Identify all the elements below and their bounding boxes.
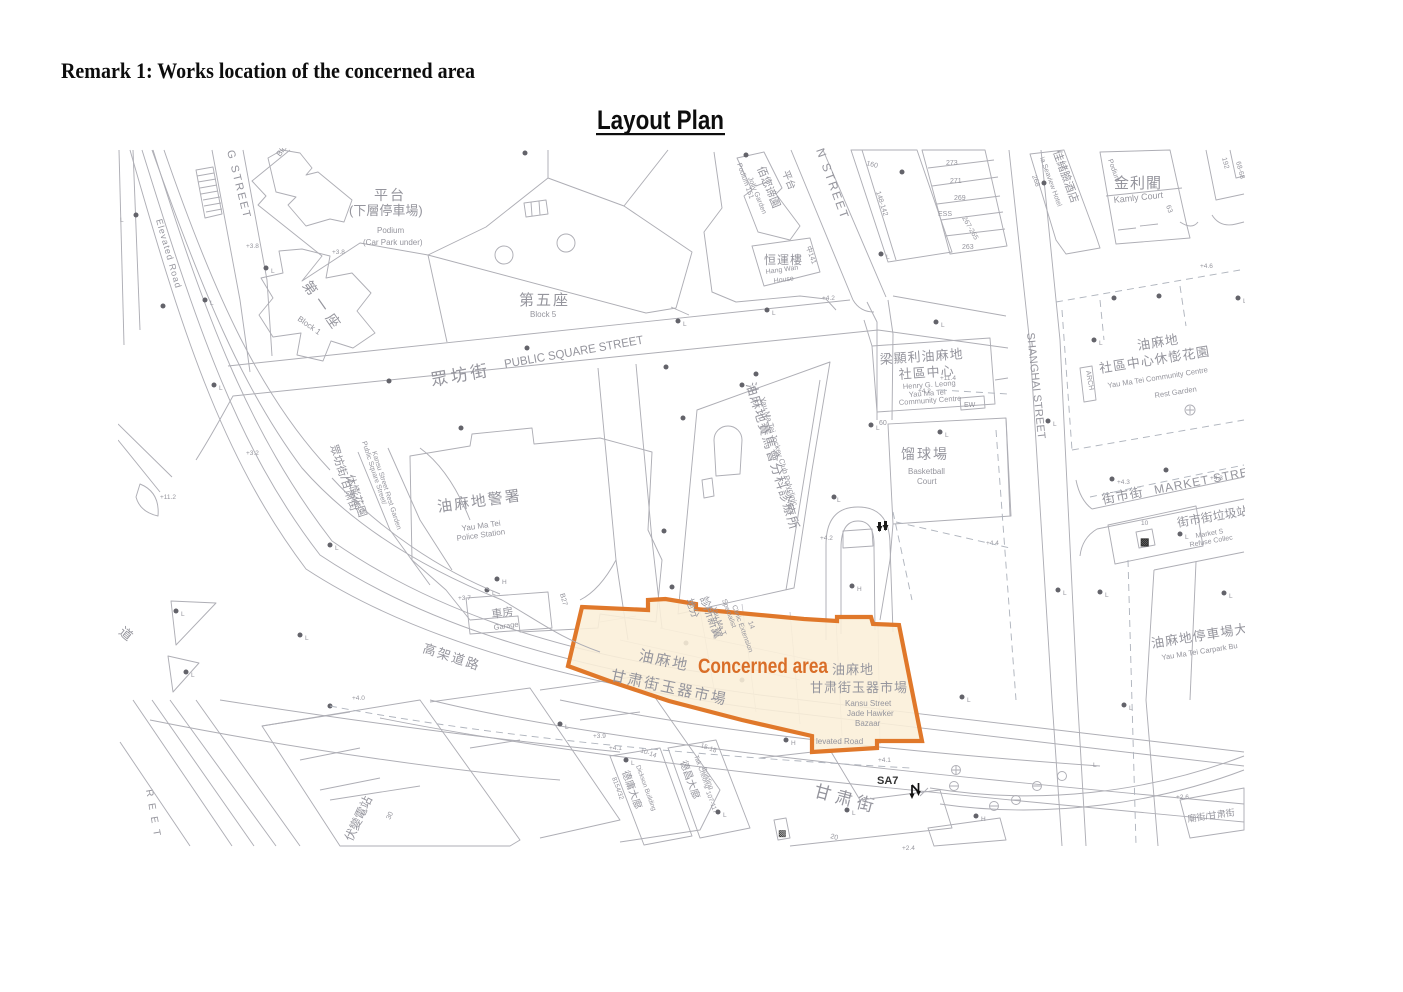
svg-text:L: L bbox=[837, 497, 841, 504]
svg-text:Concerned area: Concerned area bbox=[698, 655, 828, 678]
svg-text:L: L bbox=[1053, 421, 1057, 428]
svg-text:H: H bbox=[981, 816, 986, 823]
svg-text:Remark 1: Works location of th: Remark 1: Works location of the concerne… bbox=[61, 58, 475, 83]
svg-text:+4.2: +4.2 bbox=[822, 295, 835, 302]
svg-text:Block 5: Block 5 bbox=[530, 310, 557, 319]
svg-text:ESS: ESS bbox=[938, 211, 952, 218]
svg-text:+3.7: +3.7 bbox=[458, 595, 471, 602]
svg-text:Court: Court bbox=[917, 477, 937, 486]
svg-text:263: 263 bbox=[962, 244, 974, 251]
svg-text:+2.6: +2.6 bbox=[1176, 794, 1189, 801]
svg-text:+4.0: +4.0 bbox=[352, 695, 365, 702]
svg-text:馏球場: 馏球場 bbox=[901, 446, 949, 462]
svg-text:L: L bbox=[1229, 593, 1233, 600]
svg-text:+11.2: +11.2 bbox=[160, 494, 176, 501]
svg-text:L: L bbox=[941, 322, 945, 329]
svg-text:L: L bbox=[723, 812, 727, 819]
svg-text:L: L bbox=[876, 425, 880, 432]
svg-text:Layout Plan: Layout Plan bbox=[597, 105, 724, 135]
svg-text:L: L bbox=[1093, 762, 1097, 769]
svg-text:▩: ▩ bbox=[778, 828, 787, 838]
svg-text:▩: ▩ bbox=[1140, 537, 1149, 548]
svg-text:+3.2: +3.2 bbox=[246, 450, 259, 457]
svg-text:273: 273 bbox=[946, 160, 958, 167]
svg-text:L: L bbox=[335, 545, 339, 552]
svg-text:L: L bbox=[772, 310, 776, 317]
svg-text:SA7: SA7 bbox=[877, 775, 898, 787]
svg-text:L: L bbox=[1099, 340, 1103, 347]
svg-text:L: L bbox=[852, 810, 856, 817]
svg-text:L: L bbox=[967, 697, 971, 704]
svg-text:L: L bbox=[210, 300, 214, 307]
svg-text:油麻地: 油麻地 bbox=[832, 662, 874, 677]
svg-text:EW: EW bbox=[964, 402, 976, 409]
svg-text:甘肃街玉器市場: 甘肃街玉器市場 bbox=[810, 680, 908, 695]
svg-text:269: 269 bbox=[954, 195, 966, 202]
svg-text:(下層停車場): (下層停車場) bbox=[349, 203, 423, 218]
svg-text:第五座: 第五座 bbox=[519, 291, 570, 309]
svg-text:L: L bbox=[631, 760, 635, 767]
svg-text:L: L bbox=[120, 217, 124, 224]
svg-text:H: H bbox=[791, 740, 796, 747]
svg-text:L: L bbox=[1105, 592, 1109, 599]
svg-text:Kansu Street: Kansu Street bbox=[845, 699, 892, 708]
svg-text:L: L bbox=[271, 268, 275, 275]
svg-text:L: L bbox=[886, 254, 890, 261]
svg-text:271: 271 bbox=[950, 178, 962, 185]
svg-text:+3.8: +3.8 bbox=[332, 249, 345, 256]
svg-text:L: L bbox=[305, 635, 309, 642]
svg-text:+11.4: +11.4 bbox=[940, 375, 956, 382]
svg-text:Jade Hawker: Jade Hawker bbox=[847, 709, 894, 718]
svg-text:L: L bbox=[191, 672, 195, 679]
svg-text:+4.3: +4.3 bbox=[1117, 479, 1130, 486]
svg-text:60: 60 bbox=[879, 420, 887, 427]
svg-text:levated Road: levated Road bbox=[816, 737, 863, 746]
svg-text:L: L bbox=[565, 724, 569, 731]
svg-text:+3.9: +3.9 bbox=[593, 733, 606, 740]
svg-text:平台: 平台 bbox=[374, 187, 406, 203]
svg-text:L: L bbox=[219, 385, 223, 392]
svg-text:+4.4: +4.4 bbox=[986, 540, 999, 547]
svg-text:(Car Park under): (Car Park under) bbox=[363, 238, 423, 247]
svg-text:L: L bbox=[1063, 590, 1067, 597]
svg-text:H: H bbox=[502, 579, 507, 586]
svg-text:H: H bbox=[750, 385, 755, 392]
svg-text:L: L bbox=[683, 321, 687, 328]
svg-text:Podium: Podium bbox=[377, 226, 404, 235]
svg-text:Bazaar: Bazaar bbox=[855, 719, 881, 728]
svg-text:+4.1: +4.1 bbox=[878, 757, 891, 764]
svg-text:+4.2: +4.2 bbox=[820, 535, 833, 542]
svg-text:金利閵: 金利閵 bbox=[1114, 175, 1162, 192]
svg-text:10: 10 bbox=[1141, 520, 1149, 527]
svg-text:+3.8: +3.8 bbox=[246, 243, 259, 250]
svg-text:L: L bbox=[1129, 705, 1133, 712]
svg-text:L: L bbox=[181, 611, 185, 618]
svg-text:L: L bbox=[945, 432, 949, 439]
svg-text:+4.6: +4.6 bbox=[1200, 263, 1213, 270]
svg-text:Basketball: Basketball bbox=[908, 467, 945, 476]
svg-text:L: L bbox=[1185, 534, 1189, 541]
svg-text:H: H bbox=[857, 586, 862, 593]
svg-text:+4.2: +4.2 bbox=[918, 388, 931, 395]
svg-text:+4.3: +4.3 bbox=[1210, 475, 1223, 482]
